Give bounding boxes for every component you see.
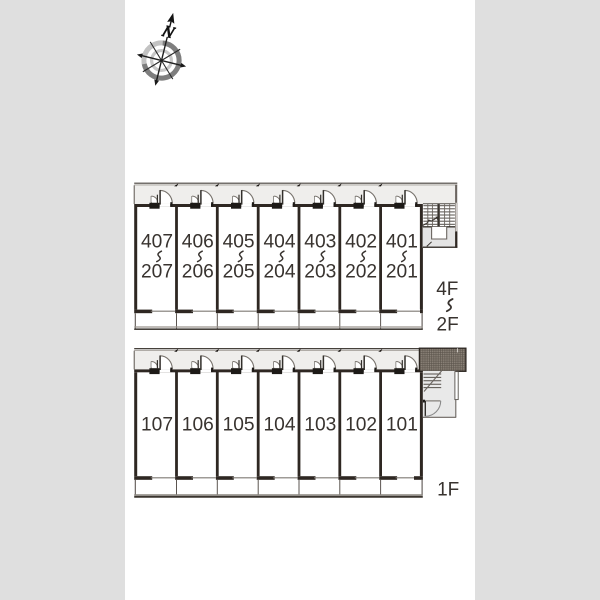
svg-text:105: 105	[223, 414, 255, 435]
svg-text:1F: 1F	[437, 480, 459, 501]
svg-text:404: 404	[263, 231, 295, 252]
svg-text:4F: 4F	[436, 279, 458, 300]
svg-text:103: 103	[304, 414, 336, 435]
svg-text:202: 202	[345, 262, 377, 283]
svg-text:2F: 2F	[437, 315, 459, 336]
svg-text:403: 403	[304, 231, 336, 252]
svg-text:206: 206	[182, 262, 214, 283]
svg-text:204: 204	[263, 262, 295, 283]
svg-text:207: 207	[141, 262, 173, 283]
svg-text:407: 407	[141, 231, 173, 252]
svg-text:402: 402	[345, 231, 377, 252]
svg-text:104: 104	[263, 414, 295, 435]
svg-text:101: 101	[386, 414, 418, 435]
svg-text:102: 102	[345, 414, 377, 435]
svg-text:201: 201	[386, 262, 418, 283]
svg-text:107: 107	[141, 414, 173, 435]
svg-text:106: 106	[182, 414, 214, 435]
svg-text:405: 405	[223, 231, 255, 252]
svg-text:401: 401	[386, 231, 418, 252]
svg-text:203: 203	[304, 262, 336, 283]
svg-text:406: 406	[182, 231, 214, 252]
svg-text:205: 205	[223, 262, 255, 283]
